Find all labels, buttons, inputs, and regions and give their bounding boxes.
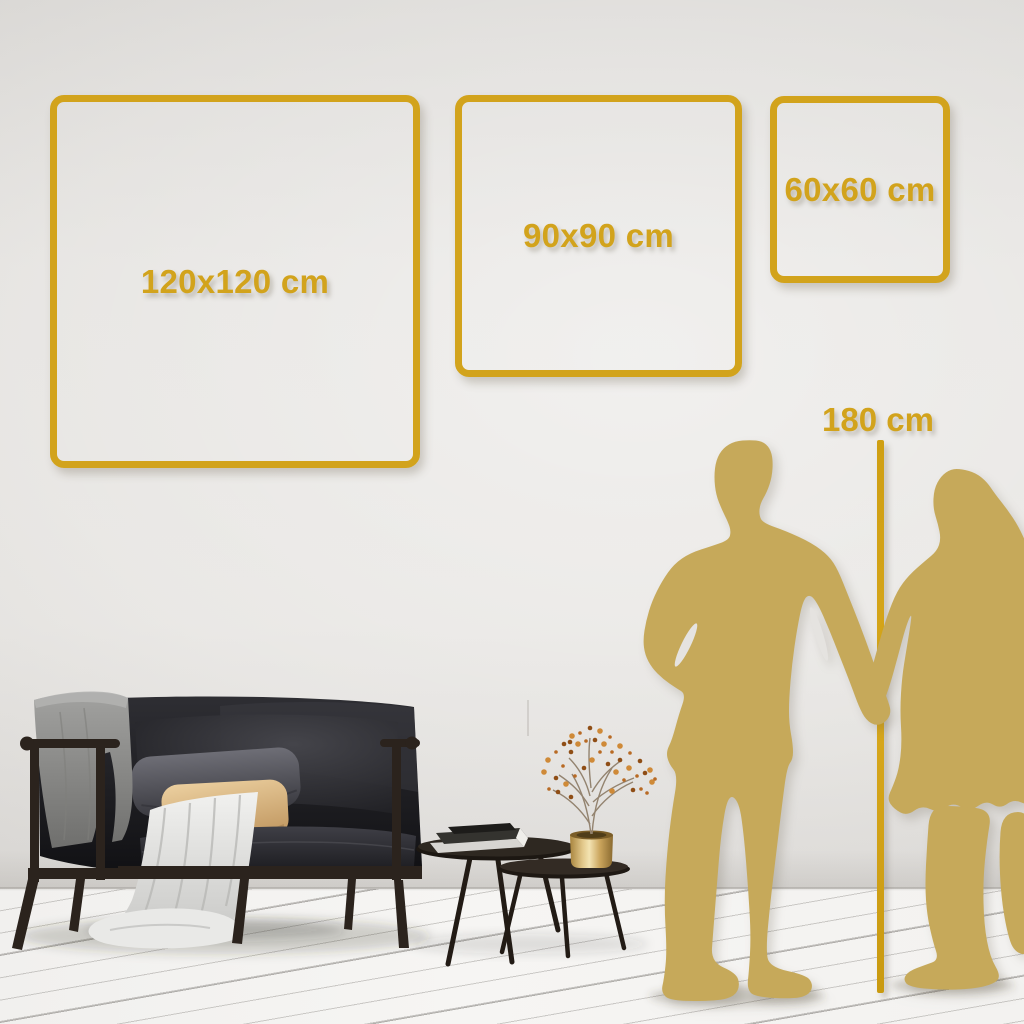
woman-silhouette xyxy=(866,469,1024,814)
size-guide-image: 120x120 cm 90x90 cm 60x60 cm 180 cm xyxy=(0,0,1024,1024)
woman-leg xyxy=(905,806,999,990)
couple-silhouette xyxy=(0,0,1024,1024)
man-silhouette xyxy=(644,440,891,1001)
woman-far-leg xyxy=(1000,812,1024,954)
